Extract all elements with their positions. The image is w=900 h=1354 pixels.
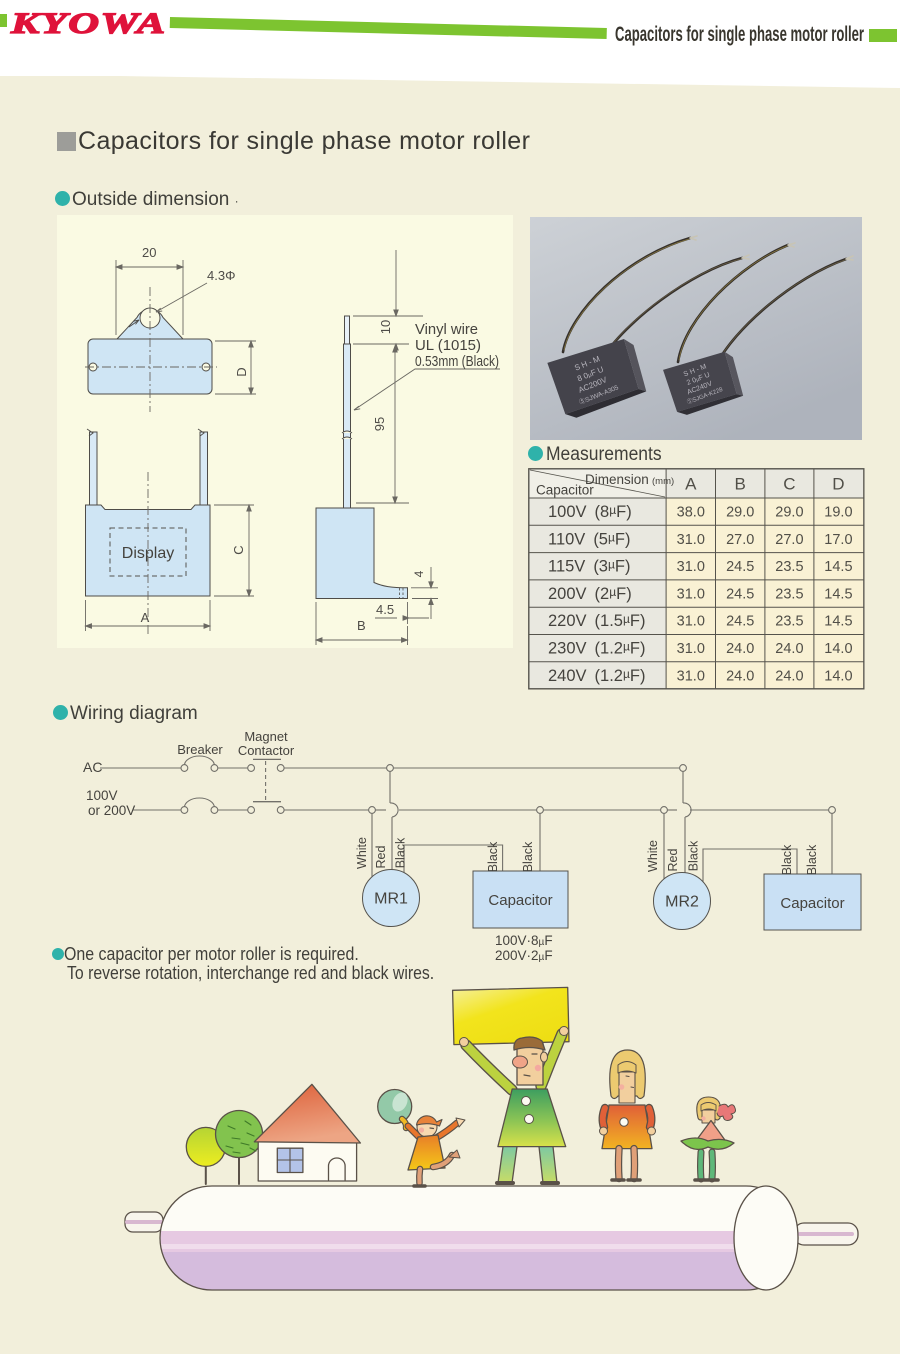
- svg-text:4: 4: [412, 570, 426, 577]
- svg-text:C: C: [231, 545, 246, 554]
- svg-text:27.0: 27.0: [775, 532, 803, 548]
- svg-text:31.0: 31.0: [677, 614, 705, 630]
- svg-text:Dimension: Dimension: [585, 472, 649, 487]
- svg-text:24.5: 24.5: [726, 559, 754, 575]
- svg-text:4.3Φ: 4.3Φ: [207, 268, 235, 283]
- svg-text:14.0: 14.0: [824, 641, 852, 657]
- svg-text:(mm): (mm): [652, 476, 674, 487]
- svg-text:29.0: 29.0: [726, 505, 754, 521]
- svg-text:Black: Black: [521, 841, 535, 872]
- svg-text:C: C: [783, 475, 795, 494]
- svg-text:100V: 100V: [86, 788, 118, 803]
- svg-text:23.5: 23.5: [775, 559, 803, 575]
- svg-text:A: A: [141, 610, 150, 625]
- svg-text:14.5: 14.5: [824, 614, 852, 630]
- svg-text:Contactor: Contactor: [238, 743, 295, 758]
- svg-text:29.0: 29.0: [775, 505, 803, 521]
- svg-text:Red: Red: [666, 848, 680, 871]
- svg-text:MR1: MR1: [374, 891, 408, 908]
- svg-text:23.5: 23.5: [775, 614, 803, 630]
- svg-text:24.5: 24.5: [726, 586, 754, 602]
- svg-text:4.5: 4.5: [376, 602, 394, 617]
- svg-text:Black: Black: [687, 840, 701, 871]
- svg-text:Black: Black: [394, 837, 408, 868]
- svg-text:27.0: 27.0: [726, 532, 754, 548]
- svg-text:19.0: 19.0: [824, 505, 852, 521]
- svg-text:14.5: 14.5: [824, 559, 852, 575]
- svg-text:31.0: 31.0: [677, 559, 705, 575]
- svg-text:Black: Black: [805, 844, 819, 875]
- svg-text:20: 20: [142, 245, 156, 260]
- svg-text:38.0: 38.0: [677, 505, 705, 521]
- svg-text:17.0: 17.0: [824, 532, 852, 548]
- svg-text:Red: Red: [374, 845, 388, 868]
- svg-text:Capacitor: Capacitor: [536, 483, 594, 498]
- svg-text:24.0: 24.0: [726, 668, 754, 684]
- svg-text:B: B: [735, 475, 746, 494]
- svg-text:14.5: 14.5: [824, 586, 852, 602]
- svg-text:Black: Black: [780, 844, 794, 875]
- svg-text:White: White: [646, 840, 660, 872]
- svg-text:White: White: [355, 837, 369, 869]
- svg-text:31.0: 31.0: [677, 532, 705, 548]
- svg-text:Vinyl wire: Vinyl wire: [415, 322, 478, 338]
- svg-text:24.0: 24.0: [726, 641, 754, 657]
- svg-text:or 200V: or 200V: [88, 803, 135, 818]
- svg-text:Magnet: Magnet: [244, 730, 288, 744]
- svg-text:MR2: MR2: [665, 894, 699, 911]
- svg-text:220V(1.5µF): 220V(1.5µF): [548, 612, 645, 630]
- svg-text:240V(1.2µF): 240V(1.2µF): [548, 667, 645, 685]
- svg-text:D: D: [234, 367, 249, 376]
- svg-text:14.0: 14.0: [824, 668, 852, 684]
- svg-text:A: A: [685, 475, 697, 494]
- svg-text:31.0: 31.0: [677, 586, 705, 602]
- svg-text:Capacitor: Capacitor: [488, 892, 552, 909]
- svg-text:Breaker: Breaker: [177, 742, 223, 757]
- svg-text:B: B: [357, 618, 366, 633]
- svg-text:D: D: [832, 475, 844, 494]
- svg-text:31.0: 31.0: [677, 668, 705, 684]
- svg-text:AC: AC: [83, 759, 102, 775]
- svg-text:23.5: 23.5: [775, 586, 803, 602]
- svg-text:UL (1015): UL (1015): [415, 338, 481, 354]
- svg-text:95: 95: [372, 417, 387, 431]
- svg-text:24.5: 24.5: [726, 614, 754, 630]
- svg-text:100V·8µF: 100V·8µF: [495, 933, 553, 948]
- svg-text:24.0: 24.0: [775, 641, 803, 657]
- svg-text:230V(1.2µF): 230V(1.2µF): [548, 640, 645, 658]
- svg-text:10: 10: [378, 320, 393, 334]
- svg-text:200V·2µF: 200V·2µF: [495, 948, 553, 963]
- svg-text:Black: Black: [486, 841, 500, 872]
- svg-text:0.53mm (Black): 0.53mm (Black): [415, 354, 499, 370]
- svg-text:31.0: 31.0: [677, 641, 705, 657]
- svg-text:Capacitor: Capacitor: [780, 895, 844, 912]
- svg-text:24.0: 24.0: [775, 668, 803, 684]
